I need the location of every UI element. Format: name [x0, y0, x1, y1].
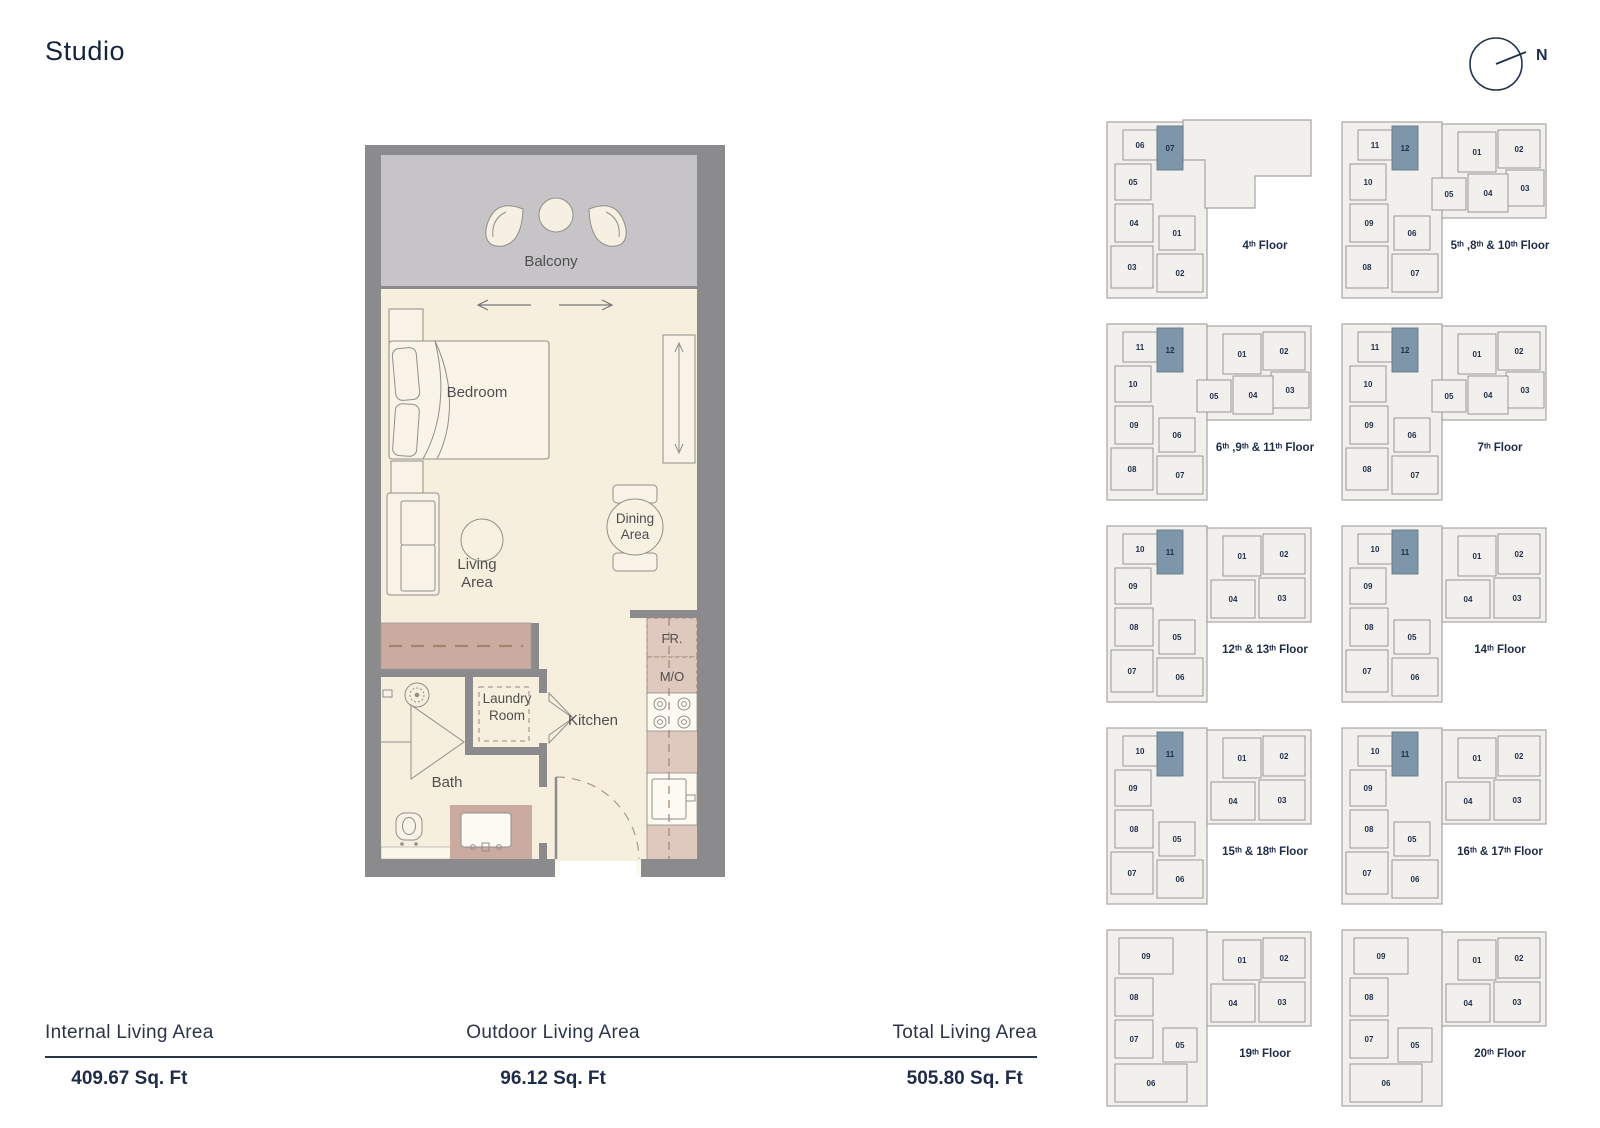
keyplan-unit-number: 11 — [1166, 548, 1175, 557]
balcony-label: Balcony — [524, 253, 578, 270]
page-title: Studio — [45, 36, 125, 67]
keyplan-unit-number: 11 — [1371, 343, 1380, 352]
keyplan-unit: 07 — [1157, 126, 1183, 170]
keyplan-unit-number: 05 — [1445, 392, 1454, 401]
keyplan-unit-number: 02 — [1280, 954, 1289, 963]
keyplan-unit-number: 11 — [1136, 343, 1145, 352]
page: Studio N — [0, 0, 1600, 1128]
keyplan-unit-number: 03 — [1521, 184, 1530, 193]
keyplan-unit: 11 — [1157, 732, 1183, 776]
keyplan-unit-number: 10 — [1371, 747, 1380, 756]
keyplan-unit: 03 — [1494, 982, 1540, 1022]
stat-label: Outdoor Living Area — [466, 1022, 640, 1044]
keyplan-unit-number: 05 — [1173, 633, 1182, 642]
keyplan-unit: 08 — [1350, 608, 1388, 646]
keyplan-unit-number: 04 — [1229, 595, 1238, 604]
keyplan-unit: 09 — [1115, 568, 1151, 604]
keyplan-floor-label: 7ᵗʰ Floor — [1438, 424, 1562, 474]
keyplan-unit-number: 04 — [1484, 391, 1493, 400]
keyplan-unit: 11 — [1392, 530, 1418, 574]
keyplan-unit: 05 — [1197, 380, 1231, 412]
keyplan-cell: 060705040301024ᵗʰ Floor — [1085, 116, 1320, 318]
keyplan-unit: 12 — [1392, 126, 1418, 170]
area-summary: Internal Living Area 409.67 Sq. Ft Outdo… — [45, 1022, 1037, 1090]
keyplan-unit: 08 — [1346, 448, 1388, 490]
keyplan-unit: 05 — [1394, 822, 1430, 856]
keyplan-unit-number: 03 — [1278, 998, 1287, 1007]
keyplan-unit: 12 — [1157, 328, 1183, 372]
keyplan-unit-number: 01 — [1473, 754, 1482, 763]
keyplan-unit-number: 05 — [1210, 392, 1219, 401]
keyplan-unit: 08 — [1115, 978, 1153, 1016]
keyplan-drawing: 1011090807050601020403 — [1085, 722, 1315, 912]
keyplan-floor-label: 5ᵗʰ ,8ᵗʰ & 10ᵗʰ Floor — [1438, 222, 1562, 272]
keyplan-cell: 101109080705060102040316ᵗʰ & 17ᵗʰ Floor — [1320, 722, 1555, 924]
kitchen-sink — [647, 773, 697, 825]
keyplan-unit: 08 — [1346, 246, 1388, 288]
keyplan-unit: 03 — [1271, 372, 1309, 408]
keyplan-drawing: 090807050601020403 — [1085, 924, 1315, 1114]
keyplan-unit-number: 06 — [1176, 673, 1185, 682]
keyplan-unit: 03 — [1259, 578, 1305, 618]
keyplan-unit-number: 04 — [1130, 219, 1139, 228]
keyplan-unit: 01 — [1458, 940, 1496, 980]
keyplan-cell: 101109080705060102040312ᵗʰ & 13ᵗʰ Floor — [1085, 520, 1320, 722]
keyplan-unit: 07 — [1350, 1020, 1388, 1058]
keyplan-drawing: 06070504030102 — [1085, 116, 1315, 306]
keyplan-unit-number: 06 — [1411, 875, 1420, 884]
keyplan-unit-number: 12 — [1401, 346, 1410, 355]
keyplan-drawing: 090807050601020403 — [1320, 924, 1550, 1114]
keyplan-unit-number: 10 — [1364, 178, 1373, 187]
keyplan-unit: 11 — [1157, 530, 1183, 574]
nightstand-bottom — [391, 461, 423, 495]
keyplan-unit-number: 07 — [1363, 869, 1372, 878]
keyplan-unit: 03 — [1494, 780, 1540, 820]
keyplan-unit-number: 09 — [1364, 784, 1373, 793]
keyplan-unit: 10 — [1123, 534, 1157, 564]
keyplan-unit: 08 — [1350, 978, 1388, 1016]
keyplan-cell: 101109080705060102040315ᵗʰ & 18ᵗʰ Floor — [1085, 722, 1320, 924]
vanity-sink — [450, 805, 532, 859]
keyplan-unit-number: 03 — [1513, 594, 1522, 603]
keyplan-unit-number: 08 — [1363, 465, 1372, 474]
keyplan-drawing: 1011090807050601020403 — [1320, 520, 1550, 710]
keyplan-unit: 05 — [1163, 1028, 1197, 1062]
dining-area-label-line1: Dining — [616, 511, 654, 526]
keyplan-unit-number: 01 — [1173, 229, 1182, 238]
keyplan-unit-number: 03 — [1513, 796, 1522, 805]
keyplan-unit: 05 — [1432, 380, 1466, 412]
nightstand-top — [389, 309, 423, 345]
keyplan-unit: 03 — [1259, 982, 1305, 1022]
keyplan-cell: 09080705060102040320ᵗʰ Floor — [1320, 924, 1555, 1126]
keyplan-unit: 09 — [1115, 770, 1151, 806]
keyplan-unit: 02 — [1157, 254, 1203, 292]
keyplan-unit: 01 — [1458, 334, 1496, 374]
keyplan-unit: 07 — [1157, 456, 1203, 494]
keyplan-unit-number: 06 — [1411, 673, 1420, 682]
kitchen-label: Kitchen — [568, 712, 618, 729]
keyplan-unit: 05 — [1159, 620, 1195, 654]
keyplan-unit-number: 09 — [1129, 784, 1138, 793]
keyplan-unit: 02 — [1498, 130, 1540, 168]
keyplan-unit-number: 07 — [1128, 869, 1137, 878]
keyplan-unit: 03 — [1111, 246, 1153, 288]
keyplan-unit: 10 — [1123, 736, 1157, 766]
keyplan-unit-number: 03 — [1278, 796, 1287, 805]
keyplan-unit-number: 10 — [1364, 380, 1373, 389]
fridge-label: FR. — [662, 631, 683, 646]
keyplan-unit: 03 — [1259, 780, 1305, 820]
pillow — [392, 347, 420, 401]
keyplan-unit: 10 — [1115, 366, 1151, 402]
keyplan-unit-number: 05 — [1445, 190, 1454, 199]
north-compass: N — [1458, 24, 1578, 102]
keyplan-unit-number: 08 — [1130, 993, 1139, 1002]
keyplan-unit-number: 11 — [1401, 548, 1410, 557]
keyplan-unit: 02 — [1263, 534, 1305, 574]
keyplan-unit: 06 — [1159, 418, 1195, 452]
keyplan-unit: 04 — [1211, 782, 1255, 820]
keyplan-unit: 10 — [1358, 534, 1392, 564]
keyplan-floor-label: 20ᵗʰ Floor — [1438, 1030, 1562, 1080]
keyplan-unit-number: 08 — [1365, 993, 1374, 1002]
keyplan-unit-number: 11 — [1371, 141, 1380, 150]
keyplan-unit: 01 — [1159, 216, 1195, 250]
keyplan-unit: 05 — [1398, 1028, 1432, 1062]
wardrobe — [381, 623, 531, 669]
floor-plan: Balcony Bedroom Living Area — [365, 145, 725, 877]
keyplan-unit: 05 — [1432, 178, 1466, 210]
keyplan-unit-number: 04 — [1464, 999, 1473, 1008]
keyplan-unit-number: 04 — [1464, 595, 1473, 604]
keyplan-unit: 05 — [1115, 164, 1151, 200]
keyplan-unit: 04 — [1233, 376, 1273, 414]
keyplan-drawing: 111210090806070102030504 — [1320, 318, 1550, 508]
stat-value: 96.12 Sq. Ft — [466, 1068, 640, 1090]
keyplan-unit-number: 01 — [1473, 956, 1482, 965]
keyplan-floor-label: 19ᵗʰ Floor — [1203, 1030, 1327, 1080]
keyplan-unit: 01 — [1223, 940, 1261, 980]
keyplan-unit: 06 — [1157, 860, 1203, 898]
keyplan-unit-number: 06 — [1176, 875, 1185, 884]
keyplan-unit: 06 — [1157, 658, 1203, 696]
living-area-label-line2: Area — [461, 574, 493, 591]
keyplan-unit-number: 09 — [1142, 952, 1151, 961]
keyplan-unit: 01 — [1458, 536, 1496, 576]
keyplan-cell: 1112100908060701020305046ᵗʰ ,9ᵗʰ & 11ᵗʰ … — [1085, 318, 1320, 520]
keyplan-unit-number: 09 — [1365, 219, 1374, 228]
keyplan-unit: 03 — [1506, 170, 1544, 206]
keyplan-unit: 06 — [1392, 658, 1438, 696]
keyplan-unit-number: 09 — [1364, 582, 1373, 591]
keyplan-unit-number: 08 — [1365, 623, 1374, 632]
keyplan-unit-number: 06 — [1382, 1079, 1391, 1088]
keyplan-unit-number: 05 — [1129, 178, 1138, 187]
keyplan-unit: 11 — [1392, 732, 1418, 776]
keyplan-unit: 10 — [1350, 164, 1386, 200]
keyplan-unit-number: 09 — [1377, 952, 1386, 961]
balcony-table — [539, 198, 573, 232]
keyplan-unit: 11 — [1358, 130, 1392, 160]
keyplan-unit-number: 01 — [1238, 754, 1247, 763]
keyplan-unit-number: 11 — [1401, 750, 1410, 759]
keyplan-unit: 06 — [1115, 1064, 1187, 1102]
microwave-label: M/O — [660, 669, 685, 684]
keyplan-unit-number: 02 — [1280, 550, 1289, 559]
keyplan-unit-number: 02 — [1176, 269, 1185, 278]
bedroom-label: Bedroom — [447, 384, 508, 401]
keyplan-unit-number: 02 — [1280, 752, 1289, 761]
keyplan-unit-number: 04 — [1229, 999, 1238, 1008]
keyplan-unit-number: 01 — [1473, 552, 1482, 561]
keyplan-unit-number: 03 — [1128, 263, 1137, 272]
keyplan-unit-number: 09 — [1129, 582, 1138, 591]
keyplan-unit-number: 02 — [1515, 550, 1524, 559]
keyplan-unit-number: 08 — [1365, 825, 1374, 834]
keyplan-unit: 03 — [1506, 372, 1544, 408]
keyplan-drawing: 1011090807050601020403 — [1085, 520, 1315, 710]
keyplan-unit-number: 09 — [1365, 421, 1374, 430]
keyplan-unit: 09 — [1350, 770, 1386, 806]
keyplan-unit-number: 05 — [1176, 1041, 1185, 1050]
keyplan-grid: 060705040301024ᵗʰ Floor11121009080607010… — [1085, 116, 1555, 1126]
keyplan-cell: 1112100908060701020305047ᵗʰ Floor — [1320, 318, 1555, 520]
keyplan-floor-label: 14ᵗʰ Floor — [1438, 626, 1562, 676]
keyplan-unit-number: 07 — [1166, 144, 1175, 153]
keyplan-unit-number: 02 — [1515, 145, 1524, 154]
keyplan-unit: 07 — [1111, 852, 1153, 894]
keyplan-unit-number: 01 — [1238, 956, 1247, 965]
keyplan-unit-number: 07 — [1363, 667, 1372, 676]
keyplan-unit-number: 03 — [1278, 594, 1287, 603]
keyplan-unit: 04 — [1446, 984, 1490, 1022]
keyplan-unit: 06 — [1350, 1064, 1422, 1102]
keyplan-unit: 07 — [1115, 1020, 1153, 1058]
keyplan-unit-number: 05 — [1408, 835, 1417, 844]
keyplan-unit-number: 08 — [1130, 623, 1139, 632]
keyplan-unit-number: 10 — [1371, 545, 1380, 554]
keyplan-unit-number: 04 — [1249, 391, 1258, 400]
keyplan-unit: 09 — [1350, 568, 1386, 604]
keyplan-unit-number: 07 — [1411, 269, 1420, 278]
dining-area-label-line2: Area — [621, 527, 650, 542]
keyplan-drawing: 111210090806070102030504 — [1085, 318, 1315, 508]
keyplan-unit: 08 — [1115, 810, 1153, 848]
laundry-label-line1: Laundry — [483, 691, 532, 706]
keyplan-unit-number: 04 — [1464, 797, 1473, 806]
stat-label: Total Living Area — [892, 1022, 1037, 1044]
keyplan-unit-number: 09 — [1130, 421, 1139, 430]
keyplan-unit-number: 07 — [1411, 471, 1420, 480]
keyplan-unit-number: 02 — [1280, 347, 1289, 356]
keyplan-unit-number: 05 — [1173, 835, 1182, 844]
keyplan-unit: 07 — [1392, 254, 1438, 292]
keyplan-unit-number: 01 — [1473, 148, 1482, 157]
keyplan-unit: 07 — [1346, 852, 1388, 894]
keyplan-unit: 04 — [1115, 204, 1153, 242]
keyplan-unit: 10 — [1358, 736, 1392, 766]
keyplan-unit-number: 06 — [1408, 431, 1417, 440]
keyplan-unit-number: 03 — [1521, 386, 1530, 395]
keyplan-unit: 06 — [1394, 216, 1430, 250]
bath-label: Bath — [432, 774, 463, 791]
sliding-closet — [663, 335, 695, 463]
keyplan-unit-number: 07 — [1128, 667, 1137, 676]
keyplan-unit-number: 01 — [1238, 350, 1247, 359]
keyplan-unit: 03 — [1494, 578, 1540, 618]
keyplan-unit: 02 — [1263, 938, 1305, 978]
keyplan-unit-number: 04 — [1229, 797, 1238, 806]
keyplan-unit-number: 08 — [1363, 263, 1372, 272]
keyplan-unit: 01 — [1223, 536, 1261, 576]
keyplan-unit: 02 — [1498, 938, 1540, 978]
keyplan-unit: 06 — [1392, 860, 1438, 898]
keyplan-drawing: 111210090806070102030504 — [1320, 116, 1550, 306]
stove — [647, 693, 697, 731]
keyplan-unit-number: 07 — [1176, 471, 1185, 480]
keyplan-unit-number: 03 — [1513, 998, 1522, 1007]
keyplan-unit-number: 05 — [1408, 633, 1417, 642]
laundry-label-line2: Room — [489, 708, 525, 723]
keyplan-floor-label: 6ᵗʰ ,9ᵗʰ & 11ᵗʰ Floor — [1203, 424, 1327, 474]
keyplan-unit-number: 07 — [1130, 1035, 1139, 1044]
stat-label: Internal Living Area — [45, 1022, 214, 1044]
keyplan-unit: 02 — [1498, 534, 1540, 574]
keyplan-floor-label: 16ᵗʰ & 17ᵗʰ Floor — [1438, 828, 1562, 878]
keyplan-unit-number: 02 — [1515, 347, 1524, 356]
living-area-label-line1: Living — [457, 556, 496, 573]
keyplan-unit-number: 02 — [1515, 752, 1524, 761]
keyplan-unit: 10 — [1350, 366, 1386, 402]
keyplan-unit: 09 — [1350, 204, 1388, 242]
keyplan-unit: 07 — [1346, 650, 1388, 692]
pillow — [392, 403, 420, 457]
keyplan-unit: 06 — [1394, 418, 1430, 452]
keyplan-unit-number: 05 — [1411, 1041, 1420, 1050]
keyplan-unit: 09 — [1115, 406, 1153, 444]
keyplan-unit: 11 — [1123, 332, 1157, 362]
keyplan-unit: 04 — [1468, 376, 1508, 414]
keyplan-unit: 04 — [1468, 174, 1508, 212]
keyplan-unit: 08 — [1115, 608, 1153, 646]
keyplan-floor-label: 4ᵗʰ Floor — [1203, 222, 1327, 272]
keyplan-unit-number: 06 — [1173, 431, 1182, 440]
keyplan-unit: 04 — [1446, 580, 1490, 618]
coffee-table — [461, 519, 503, 561]
keyplan-unit-number: 02 — [1515, 954, 1524, 963]
keyplan-unit-number: 07 — [1365, 1035, 1374, 1044]
keyplan-unit: 05 — [1159, 822, 1195, 856]
keyplan-unit: 01 — [1458, 738, 1496, 778]
stat-value: 409.67 Sq. Ft — [45, 1068, 214, 1090]
keyplan-unit-number: 08 — [1130, 825, 1139, 834]
keyplan-unit-number: 12 — [1166, 346, 1175, 355]
keyplan-unit: 02 — [1263, 736, 1305, 776]
kitchen-counter — [647, 618, 697, 859]
keyplan-unit: 04 — [1211, 580, 1255, 618]
keyplan-drawing: 1011090807050601020403 — [1320, 722, 1550, 912]
keyplan-unit-number: 12 — [1401, 144, 1410, 153]
keyplan-unit-number: 11 — [1166, 750, 1175, 759]
keyplan-unit: 07 — [1392, 456, 1438, 494]
keyplan-unit-number: 03 — [1286, 386, 1295, 395]
keyplan-unit: 08 — [1111, 448, 1153, 490]
keyplan-unit-number: 10 — [1136, 747, 1145, 756]
keyplan-unit: 01 — [1458, 132, 1496, 172]
keyplan-unit: 09 — [1119, 938, 1173, 974]
keyplan-unit: 07 — [1111, 650, 1153, 692]
keyplan-unit-number: 08 — [1128, 465, 1137, 474]
keyplan-cell: 1112100908060701020305045ᵗʰ ,8ᵗʰ & 10ᵗʰ … — [1320, 116, 1555, 318]
keyplan-unit-number: 01 — [1238, 552, 1247, 561]
keyplan-floor-label: 15ᵗʰ & 18ᵗʰ Floor — [1203, 828, 1327, 878]
keyplan-unit: 05 — [1394, 620, 1430, 654]
keyplan-unit: 09 — [1350, 406, 1388, 444]
north-label: N — [1536, 47, 1548, 64]
keyplan-unit: 06 — [1123, 130, 1157, 160]
divider — [45, 1056, 1037, 1058]
sofa — [387, 493, 439, 595]
keyplan-unit: 04 — [1446, 782, 1490, 820]
keyplan-unit: 02 — [1498, 332, 1540, 370]
keyplan-unit: 01 — [1223, 334, 1261, 374]
keyplan-unit: 11 — [1358, 332, 1392, 362]
keyplan-unit-number: 06 — [1136, 141, 1145, 150]
keyplan-cell: 09080705060102040319ᵗʰ Floor — [1085, 924, 1320, 1126]
keyplan-unit: 01 — [1223, 738, 1261, 778]
dining-chair — [613, 553, 657, 571]
keyplan-unit: 08 — [1350, 810, 1388, 848]
keyplan-floor-label: 12ᵗʰ & 13ᵗʰ Floor — [1203, 626, 1327, 676]
keyplan-cell: 101109080705060102040314ᵗʰ Floor — [1320, 520, 1555, 722]
keyplan-unit-number: 04 — [1484, 189, 1493, 198]
keyplan-unit-number: 06 — [1408, 229, 1417, 238]
stat-value: 505.80 Sq. Ft — [892, 1068, 1037, 1090]
keyplan-unit-number: 10 — [1129, 380, 1138, 389]
keyplan-unit-number: 10 — [1136, 545, 1145, 554]
keyplan-unit: 04 — [1211, 984, 1255, 1022]
keyplan-unit: 02 — [1263, 332, 1305, 370]
keyplan-unit: 02 — [1498, 736, 1540, 776]
keyplan-unit: 09 — [1354, 938, 1408, 974]
keyplan-unit-number: 01 — [1473, 350, 1482, 359]
keyplan-unit-number: 06 — [1147, 1079, 1156, 1088]
keyplan-unit: 12 — [1392, 328, 1418, 372]
